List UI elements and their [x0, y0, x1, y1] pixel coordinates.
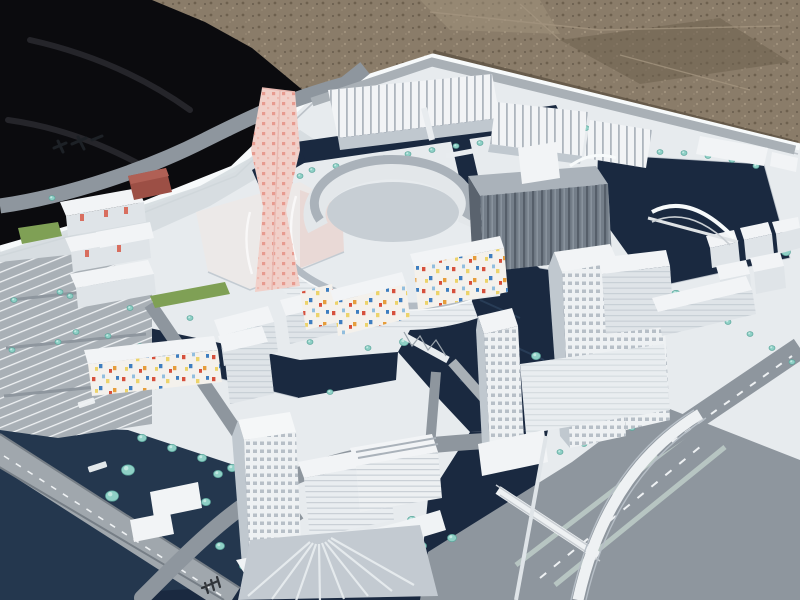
courtyard-plaza: [327, 182, 459, 242]
photo-architectural-model: [0, 0, 800, 600]
model-photo-canvas: [0, 0, 800, 600]
tower-behind: [518, 142, 560, 184]
